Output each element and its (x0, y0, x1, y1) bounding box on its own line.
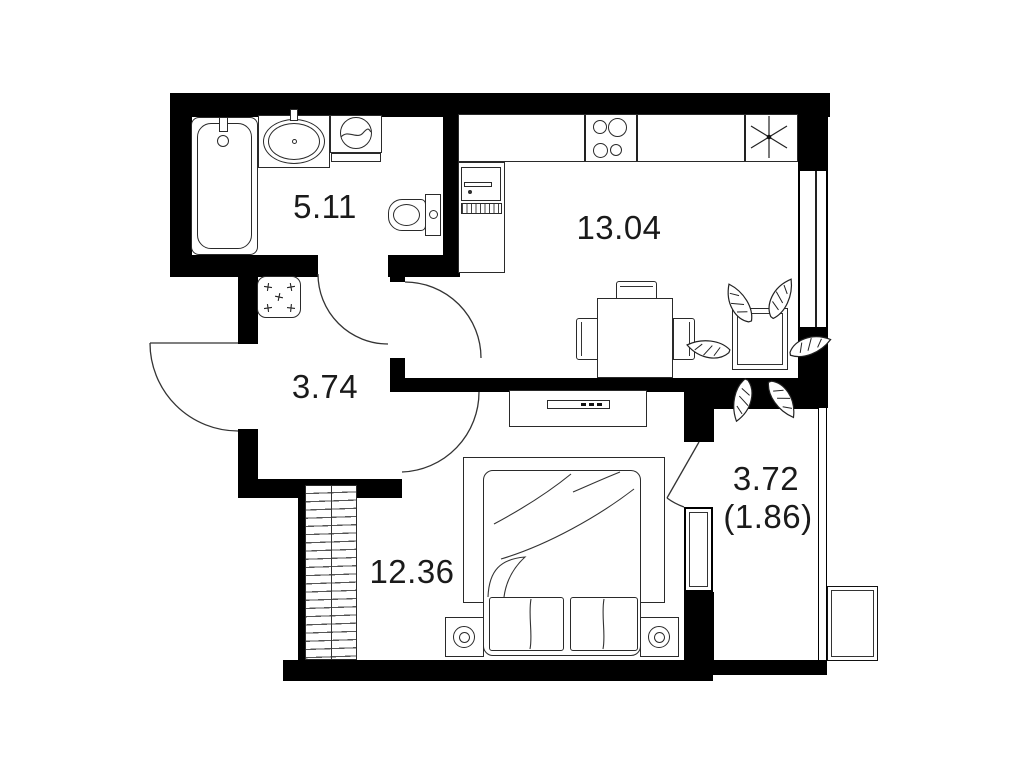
room-label-bathroom: 5.11 (293, 188, 357, 226)
chair-icon (616, 281, 657, 299)
wall-right-upper (798, 115, 828, 171)
toilet-bowl-inner (393, 204, 420, 226)
stove-burner-icon (610, 144, 622, 156)
plant-pot (732, 308, 788, 370)
wall-bathroom-bottom-left (170, 255, 318, 277)
lamp-inner (459, 632, 470, 643)
wall-right-lower (798, 327, 828, 380)
wardrobe-icon (305, 485, 357, 660)
bedroom-balcony-window-frame (689, 512, 708, 587)
wardrobe-divider (331, 486, 332, 659)
doormat-icon (257, 276, 301, 318)
dining-table-icon (597, 298, 673, 378)
balcony-door-icon (667, 442, 699, 507)
bathtub-drain-icon (217, 135, 229, 147)
wall-balcony-top (713, 378, 828, 408)
entrance-door-icon (150, 343, 238, 431)
wall-bedroom-bottom (283, 660, 713, 681)
bathroom-door-icon (318, 274, 388, 344)
stove-burner-icon (608, 118, 627, 137)
balcony-top-line (713, 407, 819, 409)
counter-divider (636, 115, 638, 161)
washing-machine-drum (340, 117, 372, 149)
washbasin-drain-icon (292, 139, 297, 144)
kitchen-sink-drain (468, 190, 472, 194)
chair-icon (673, 318, 695, 360)
tv-detail (589, 403, 594, 406)
kitchen-window (798, 171, 828, 327)
counter-divider (584, 115, 586, 161)
toilet-flush-button (429, 210, 438, 219)
counter-divider (744, 115, 746, 161)
air-conditioner-icon (827, 586, 878, 661)
wall-hallway-left-upper (238, 277, 258, 344)
balcony-glazing (818, 408, 827, 660)
pillow-icon (570, 597, 638, 651)
bedroom-balcony-window (684, 507, 713, 592)
room-label-balcony-secondary: (1.86) (723, 498, 812, 536)
room-label-bedroom: 12.36 (369, 553, 454, 591)
kitchen-faucet-icon (464, 182, 492, 187)
tv-detail (597, 403, 602, 406)
drainboard-icon (461, 203, 502, 214)
room-label-kitchen-living: 13.04 (576, 209, 661, 247)
chair-icon (576, 318, 598, 360)
kitchen-counter (458, 114, 798, 162)
washing-machine-tray (331, 153, 381, 162)
washbasin-faucet-icon (290, 109, 298, 121)
stove-burner-icon (593, 143, 608, 158)
wall-balcony-bottom (713, 660, 827, 675)
wall-balcony-partition-upper (684, 378, 714, 442)
lamp-inner (654, 632, 665, 643)
stove-burner-icon (593, 120, 607, 134)
bathtub-faucet-icon (219, 117, 228, 132)
floor-plan: 5.11 13.04 3.74 12.36 3.72 (1.86) (0, 0, 1024, 768)
wall-kitchen-door-upper (390, 255, 405, 282)
tv-detail (581, 403, 586, 406)
room-label-hallway: 3.74 (292, 368, 358, 406)
wall-left-bathroom (170, 93, 192, 277)
wall-bathroom-kitchen (443, 115, 458, 277)
kitchen-door-icon (405, 282, 481, 358)
tv-icon (547, 400, 610, 409)
pillow-icon (489, 597, 564, 651)
kitchen-window-frame-line (815, 171, 817, 327)
room-label-balcony: 3.72 (733, 460, 799, 498)
